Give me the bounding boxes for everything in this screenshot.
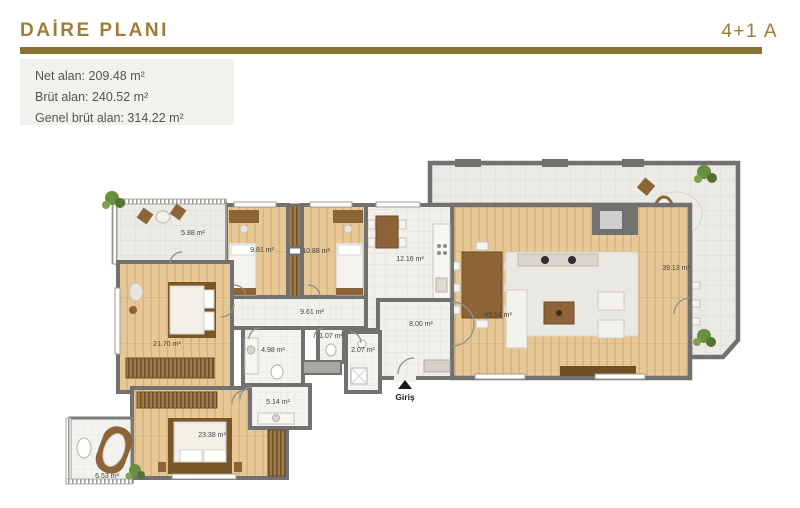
- label-bathroom-1: 4.98 m²: [261, 347, 285, 354]
- balcony-table: [156, 211, 170, 223]
- desk: [333, 210, 363, 223]
- chimney-core: [600, 211, 622, 229]
- vanity: [245, 338, 258, 374]
- wardrobe: [126, 358, 214, 378]
- label-living-room: 49.14 m²: [484, 312, 512, 319]
- wardrobe: [137, 392, 217, 408]
- label-terrace: 39.13 m²: [662, 265, 690, 272]
- label-bathroom-3: 6.53 m²: [95, 473, 119, 480]
- room-bathroom-1: [243, 328, 303, 385]
- desk: [229, 210, 259, 223]
- sink: [77, 438, 91, 458]
- room-bathroom-2: [346, 332, 380, 392]
- room-bedroom-3: [118, 262, 232, 392]
- toilet: [326, 344, 336, 356]
- label-bathroom-2: 2.07 m²: [351, 347, 375, 354]
- side-table: [129, 306, 137, 314]
- label-wc: 1.07 m²: [319, 333, 343, 340]
- shaft: [303, 361, 341, 374]
- label-kitchen: 12.16 m²: [396, 256, 424, 263]
- armchair: [129, 283, 143, 301]
- label-master-bedroom: 23.38 m²: [198, 432, 226, 439]
- label-bedroom-3: 21.70 m²: [153, 341, 181, 348]
- toilet: [271, 365, 283, 379]
- vent-box: [542, 159, 568, 167]
- living-sofa-set: [506, 252, 638, 348]
- sink: [273, 415, 280, 422]
- desk-chair: [240, 225, 248, 233]
- label-dressing: 5.14 m²: [266, 399, 290, 406]
- entrance-label: Giriş: [395, 392, 415, 402]
- vent-box: [455, 159, 481, 167]
- wardrobe: [268, 430, 285, 476]
- room-hall: [232, 297, 366, 328]
- label-bedroom-2: 10.88 m²: [302, 248, 330, 255]
- room-dressing: [248, 385, 310, 428]
- apartment-plan-page: DAİRE PLANI 4+1 A Net alan: 209.48 m² Br…: [0, 0, 800, 508]
- balcony-railing: [66, 418, 71, 482]
- bed: [158, 418, 242, 474]
- entry-bench: [424, 360, 450, 372]
- kitchen-counter: [433, 224, 450, 306]
- balcony-railing: [112, 199, 226, 204]
- desk-chair: [344, 225, 352, 233]
- room-balcony-top: [102, 191, 226, 264]
- label-balcony-top: 5.88 m²: [181, 230, 205, 237]
- room-living: [451, 205, 690, 378]
- floor-plan: Giriş 5.88 m² 9.81 m² 10.88 m² 12.16 m² …: [0, 0, 800, 508]
- label-hall: 9.61 m²: [300, 309, 324, 316]
- sink: [247, 346, 255, 354]
- label-bedroom-1: 9.81 m²: [250, 247, 274, 254]
- bed: [168, 282, 216, 338]
- entrance-marker: Giriş: [395, 380, 415, 402]
- room-entry-hall: [378, 300, 452, 382]
- label-entry-hall: 8.00 m²: [409, 321, 433, 328]
- closet-strip: [288, 205, 302, 297]
- balcony-railing: [112, 199, 117, 264]
- vent-box: [622, 159, 644, 167]
- bed: [336, 243, 363, 295]
